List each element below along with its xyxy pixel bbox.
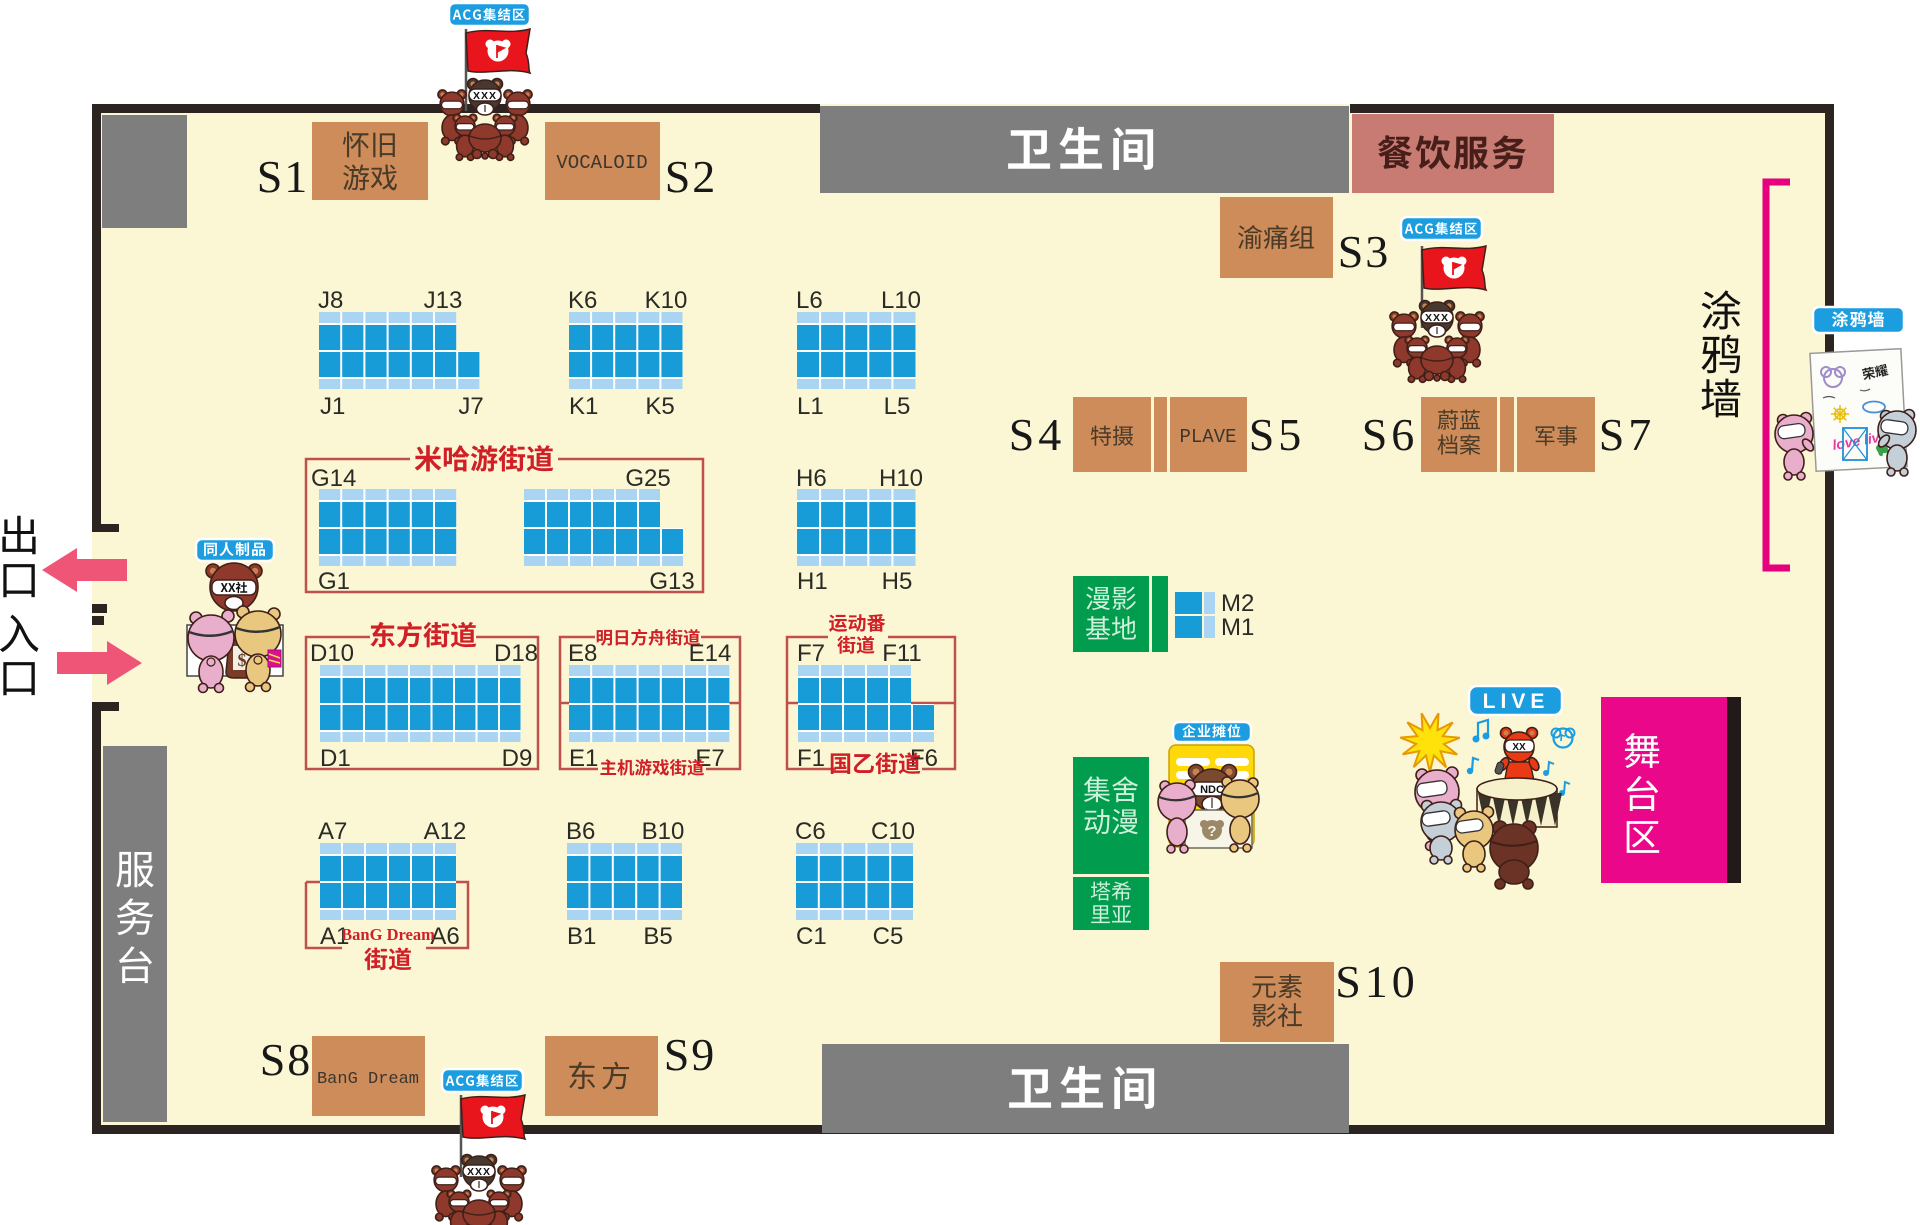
svg-text:H5: H5: [882, 568, 913, 595]
svg-text:S9: S9: [664, 1029, 717, 1080]
svg-text:NDC: NDC: [1200, 784, 1224, 796]
svg-text:L10: L10: [881, 287, 921, 314]
svg-text:C10: C10: [871, 818, 915, 845]
svg-text:G25: G25: [625, 465, 670, 492]
svg-text:F1: F1: [797, 745, 825, 772]
svg-text:XX: XX: [1512, 742, 1526, 753]
svg-text:F7: F7: [797, 640, 825, 667]
svg-text:K10: K10: [645, 287, 688, 314]
svg-text:K6: K6: [568, 287, 597, 314]
svg-text:B5: B5: [643, 923, 672, 950]
svg-text:B10: B10: [642, 818, 685, 845]
svg-text:E8: E8: [568, 640, 597, 667]
svg-text:S10: S10: [1335, 956, 1419, 1007]
svg-text:C5: C5: [873, 923, 904, 950]
svg-text:M2: M2: [1221, 590, 1254, 617]
svg-text:S4: S4: [1009, 409, 1066, 460]
svg-text:L1: L1: [797, 393, 824, 420]
svg-text:J13: J13: [424, 287, 463, 314]
svg-text:VOCALOID: VOCALOID: [556, 152, 647, 174]
svg-text:D9: D9: [502, 745, 533, 772]
svg-text:J7: J7: [458, 393, 483, 420]
svg-text:B6: B6: [566, 818, 595, 845]
svg-text:S5: S5: [1249, 409, 1306, 460]
svg-text:D10: D10: [310, 640, 354, 667]
svg-text:C1: C1: [796, 923, 827, 950]
svg-text:?: ?: [1207, 823, 1216, 840]
svg-text:H1: H1: [797, 568, 828, 595]
svg-text:J1: J1: [320, 393, 345, 420]
svg-text:G13: G13: [649, 568, 694, 595]
svg-text:L5: L5: [884, 393, 911, 420]
svg-text:K5: K5: [645, 393, 674, 420]
svg-text:S7: S7: [1599, 409, 1656, 460]
svg-text:S8: S8: [260, 1034, 313, 1085]
svg-text:B1: B1: [567, 923, 596, 950]
svg-text:K1: K1: [569, 393, 598, 420]
svg-text:XXX: XXX: [473, 90, 497, 102]
svg-text:G1: G1: [318, 568, 350, 595]
svg-text:A7: A7: [318, 818, 347, 845]
svg-text:J8: J8: [318, 287, 343, 314]
svg-text:H6: H6: [796, 465, 827, 492]
svg-text:XXX: XXX: [467, 1166, 491, 1178]
svg-text:D18: D18: [494, 640, 538, 667]
svg-text:A12: A12: [424, 818, 467, 845]
svg-text:D1: D1: [320, 745, 351, 772]
svg-text:G14: G14: [311, 465, 356, 492]
svg-text:S6: S6: [1362, 409, 1419, 460]
svg-text:XXX: XXX: [1425, 312, 1449, 324]
svg-text:LIVE: LIVE: [1483, 690, 1550, 713]
svg-text:F6: F6: [910, 745, 938, 772]
svg-text:S1: S1: [257, 151, 310, 202]
svg-text:PLAVE: PLAVE: [1179, 426, 1236, 448]
svg-text:BanG Dream: BanG Dream: [317, 1070, 419, 1089]
svg-text:C6: C6: [795, 818, 826, 845]
svg-text:E14: E14: [689, 640, 732, 667]
svg-text:E1: E1: [569, 745, 598, 772]
svg-text:F11: F11: [882, 640, 922, 667]
svg-text:E7: E7: [695, 745, 724, 772]
svg-text:S2: S2: [665, 151, 718, 202]
svg-text:BanG Dream: BanG Dream: [341, 925, 435, 944]
svg-text:H10: H10: [879, 465, 923, 492]
svg-text:M1: M1: [1221, 614, 1254, 641]
svg-text:S3: S3: [1338, 226, 1391, 277]
svg-text:L6: L6: [796, 287, 823, 314]
